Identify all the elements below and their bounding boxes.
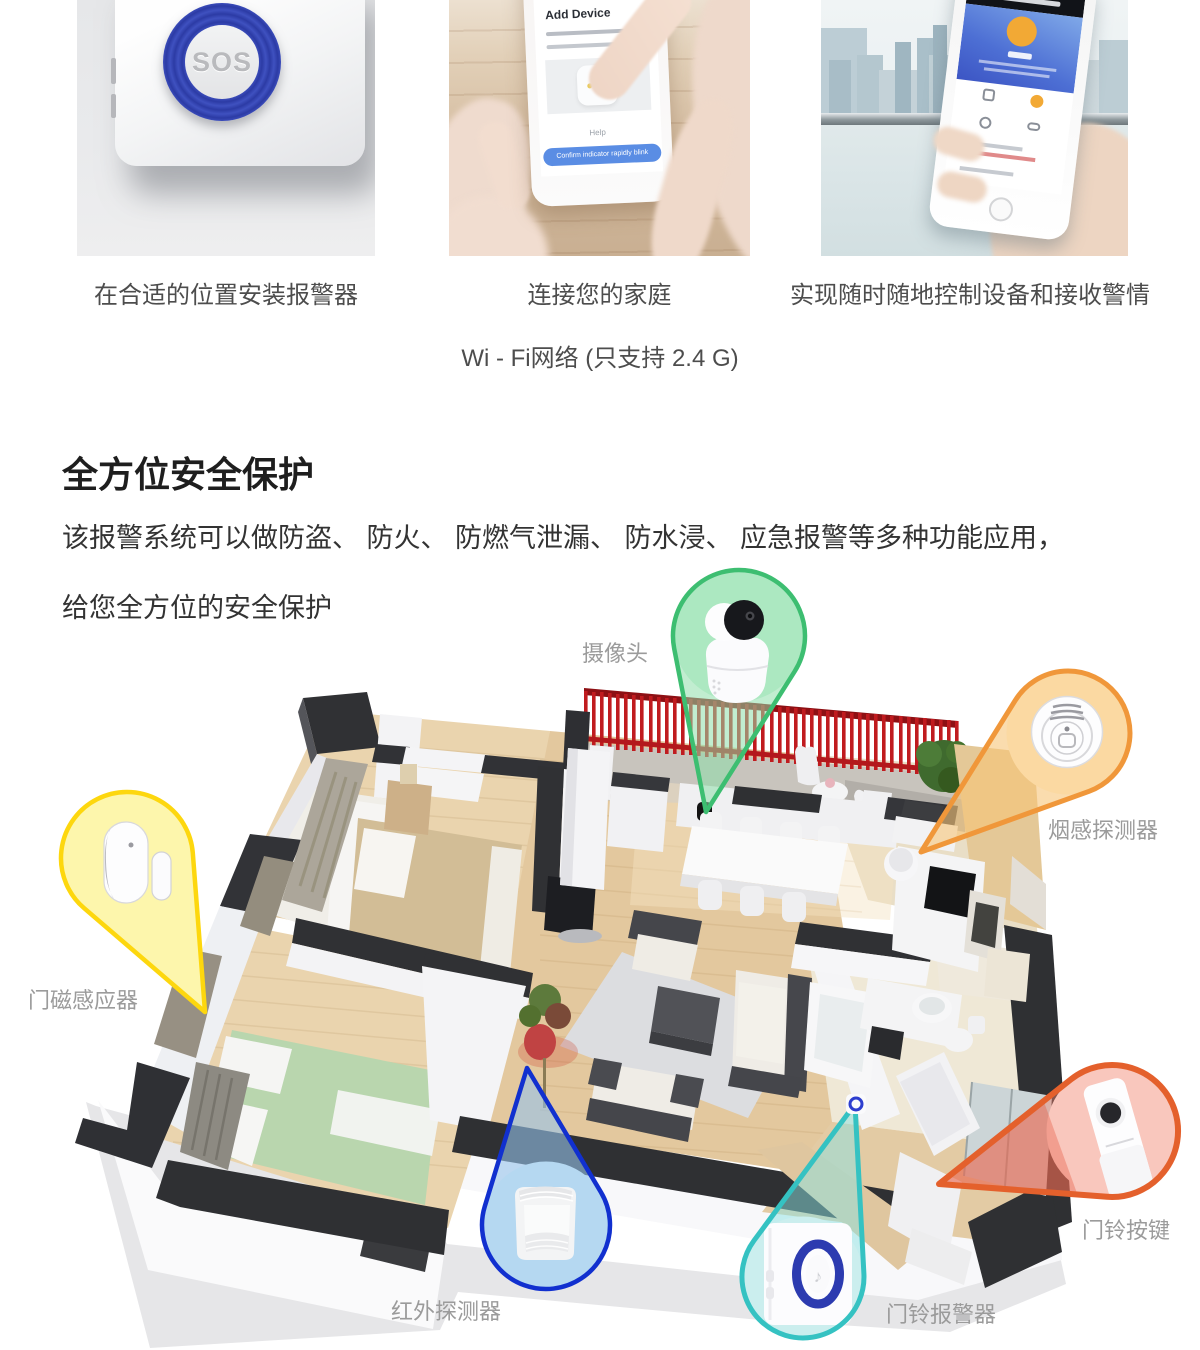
svg-text:♪: ♪ xyxy=(814,1267,823,1286)
